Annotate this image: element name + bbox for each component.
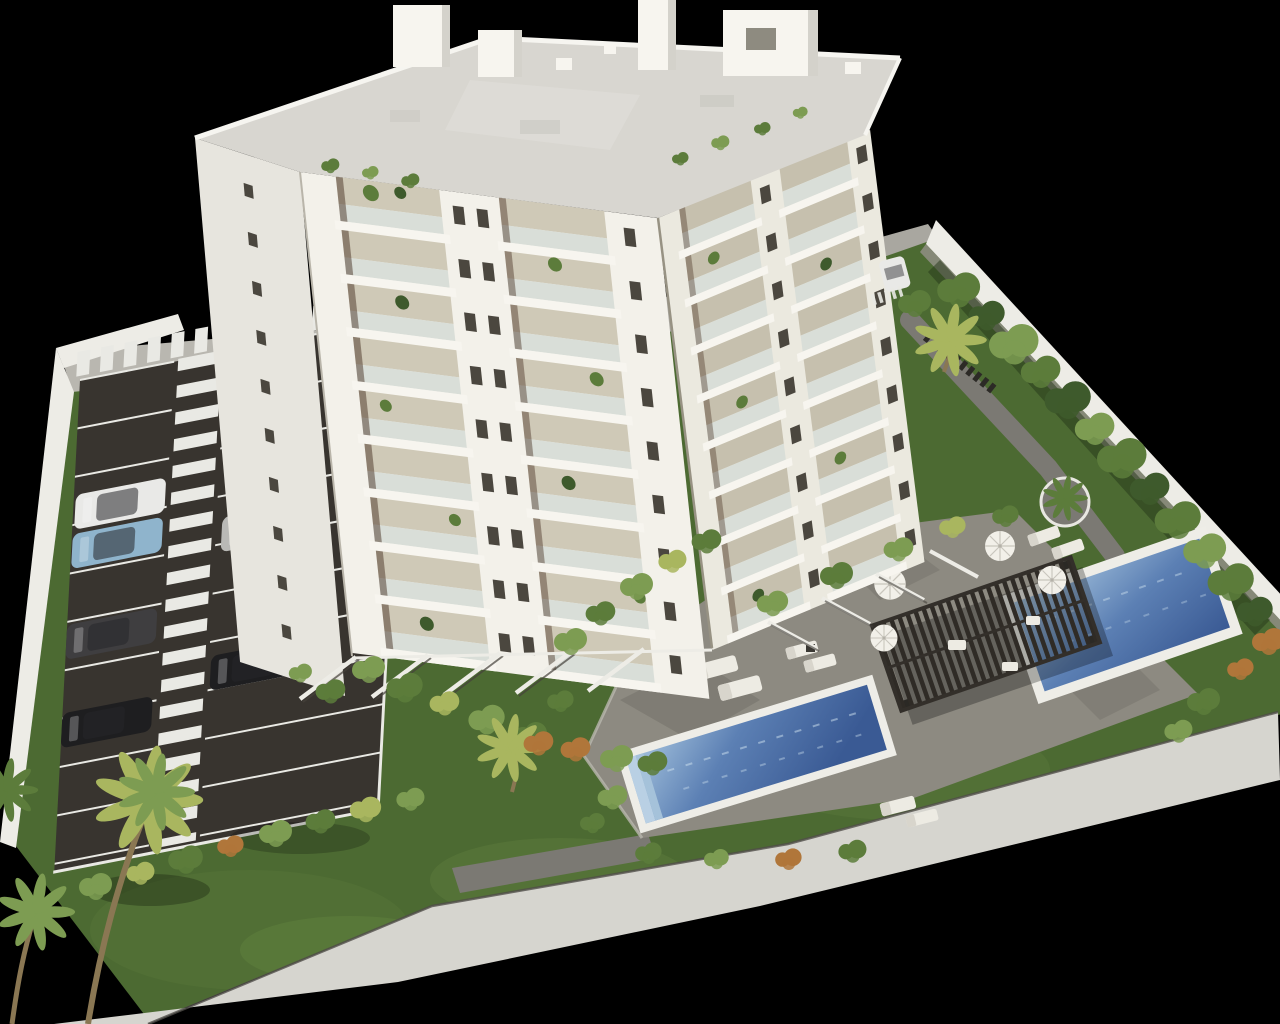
parasol xyxy=(871,625,898,652)
parasol xyxy=(985,531,1015,561)
parasol xyxy=(1038,566,1067,595)
rendered-scene xyxy=(0,0,1280,1024)
pergola-seat xyxy=(1002,662,1018,671)
facade-southwest xyxy=(300,172,709,699)
apartment-tower xyxy=(195,0,925,699)
pergola-seat xyxy=(1026,616,1040,625)
pergola-seat xyxy=(948,640,966,650)
architectural-rendering xyxy=(0,0,1280,1024)
